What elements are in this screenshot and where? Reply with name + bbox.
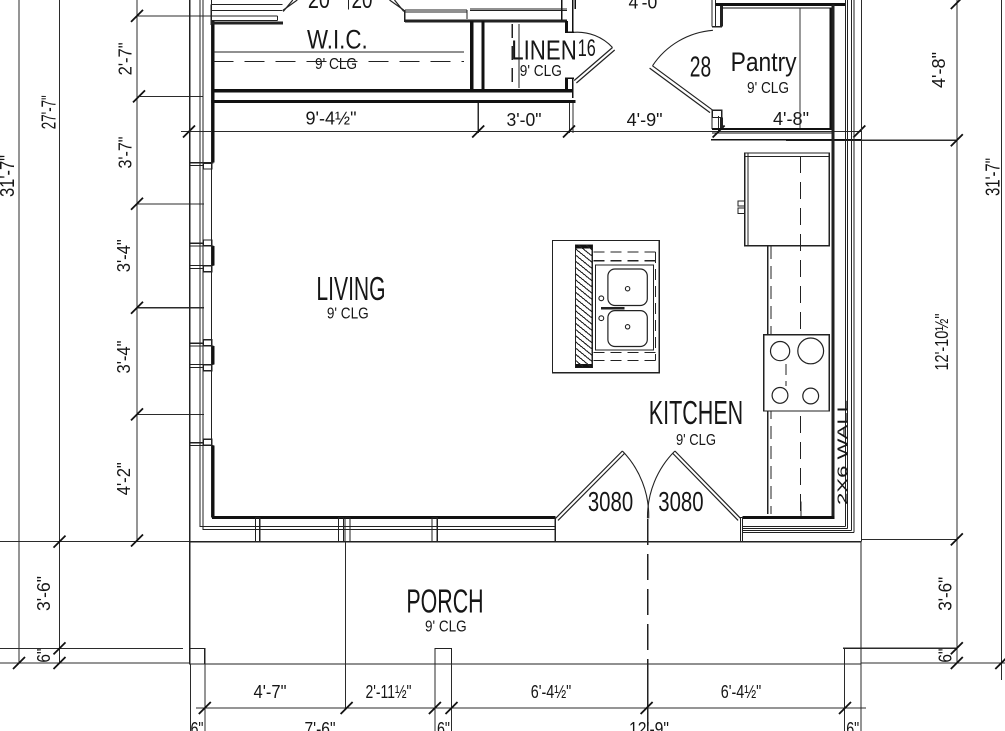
svg-text:2'-11½": 2'-11½" <box>366 681 412 702</box>
svg-text:4'-9": 4'-9" <box>627 109 663 130</box>
svg-text:PORCH: PORCH <box>406 582 483 619</box>
svg-text:12'-10½": 12'-10½" <box>931 314 952 371</box>
svg-text:3080: 3080 <box>658 486 703 517</box>
svg-text:9' CLG: 9' CLG <box>315 56 357 73</box>
svg-text:9' CLG: 9' CLG <box>425 618 467 635</box>
svg-text:9' CLG: 9' CLG <box>327 306 369 323</box>
svg-text:Pantry: Pantry <box>731 47 798 77</box>
svg-text:7'-6": 7'-6" <box>305 718 336 731</box>
svg-text:W.I.C.: W.I.C. <box>307 25 368 55</box>
svg-text:31'-7": 31'-7" <box>0 155 19 197</box>
svg-text:4'-2": 4'-2" <box>113 462 134 495</box>
svg-text:4'-8": 4'-8" <box>773 108 809 129</box>
svg-text:20: 20 <box>308 0 330 14</box>
svg-text:6": 6" <box>935 649 956 663</box>
svg-text:6'-4½": 6'-4½" <box>531 681 572 702</box>
svg-text:3'-6": 3'-6" <box>935 577 956 611</box>
svg-text:2'-7": 2'-7" <box>115 42 136 75</box>
svg-text:9' CLG: 9' CLG <box>520 63 562 80</box>
svg-text:3080: 3080 <box>588 486 633 517</box>
svg-text:3'-0": 3'-0" <box>507 109 542 130</box>
svg-text:6'-4½": 6'-4½" <box>721 681 762 702</box>
svg-text:3'-4": 3'-4" <box>113 341 134 374</box>
svg-text:KITCHEN: KITCHEN <box>649 394 743 431</box>
svg-text:27'-7": 27'-7" <box>39 95 61 129</box>
svg-text:16: 16 <box>578 35 596 62</box>
svg-text:31'-7": 31'-7" <box>983 158 1005 196</box>
svg-text:2X6 WALL: 2X6 WALL <box>835 400 852 505</box>
svg-text:3'-4": 3'-4" <box>113 239 134 272</box>
svg-text:LINEN: LINEN <box>511 34 577 65</box>
svg-text:3'-7": 3'-7" <box>115 137 136 169</box>
svg-text:20: 20 <box>352 0 373 14</box>
svg-text:9' CLG: 9' CLG <box>747 80 789 97</box>
svg-text:6": 6" <box>846 718 859 731</box>
svg-text:9'-4½": 9'-4½" <box>306 108 357 129</box>
svg-text:28: 28 <box>690 52 711 84</box>
svg-text:LIVING: LIVING <box>316 270 385 307</box>
svg-text:4'-0": 4'-0" <box>629 0 664 13</box>
svg-text:12'-9": 12'-9" <box>629 718 669 731</box>
svg-text:4'-7": 4'-7" <box>254 681 287 702</box>
svg-text:9' CLG: 9' CLG <box>676 432 716 449</box>
svg-text:6": 6" <box>437 718 450 731</box>
svg-text:6": 6" <box>191 718 204 731</box>
svg-text:6": 6" <box>33 649 54 663</box>
svg-text:3'-6": 3'-6" <box>33 576 54 611</box>
svg-text:4'-8": 4'-8" <box>928 52 949 88</box>
